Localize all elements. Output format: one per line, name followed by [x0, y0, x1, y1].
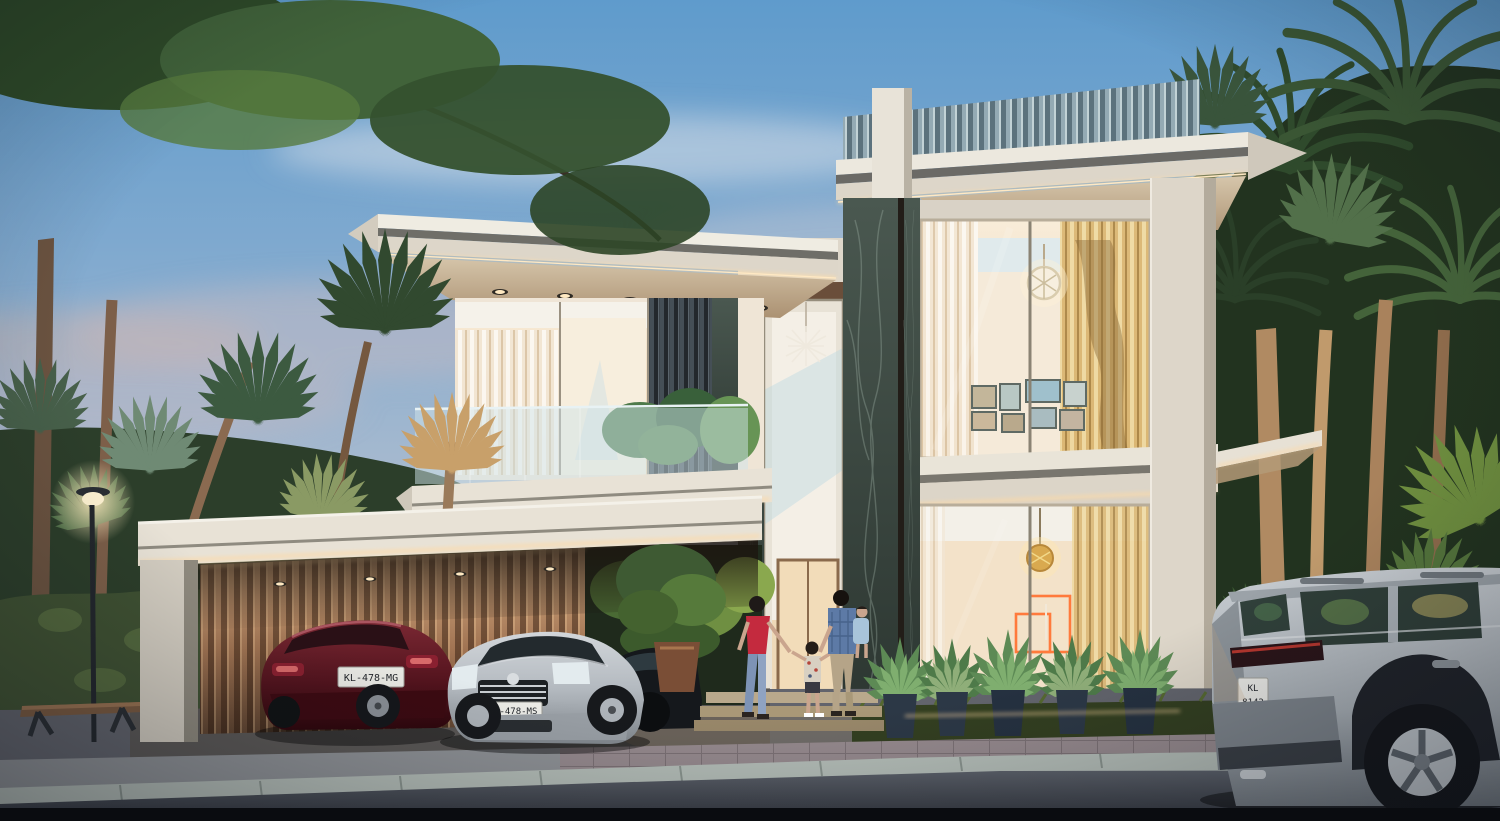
vignette	[0, 0, 1500, 821]
letterbox-bar	[0, 808, 1500, 821]
villa-render: KL-478-MG KL-478-MS	[0, 0, 1500, 821]
